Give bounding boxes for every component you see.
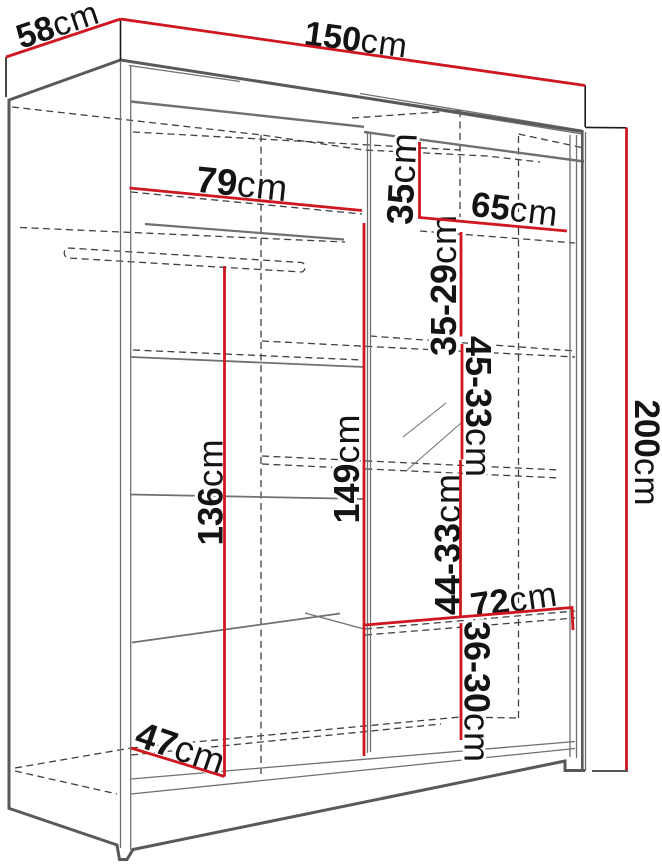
- svg-text:35-29cm: 35-29cm: [423, 214, 464, 356]
- svg-text:200cm: 200cm: [627, 399, 662, 506]
- svg-text:149cm: 149cm: [326, 413, 367, 523]
- svg-text:45-33cm: 45-33cm: [458, 336, 499, 478]
- svg-text:35cm: 35cm: [379, 131, 425, 226]
- svg-text:36-30cm: 36-30cm: [457, 621, 498, 763]
